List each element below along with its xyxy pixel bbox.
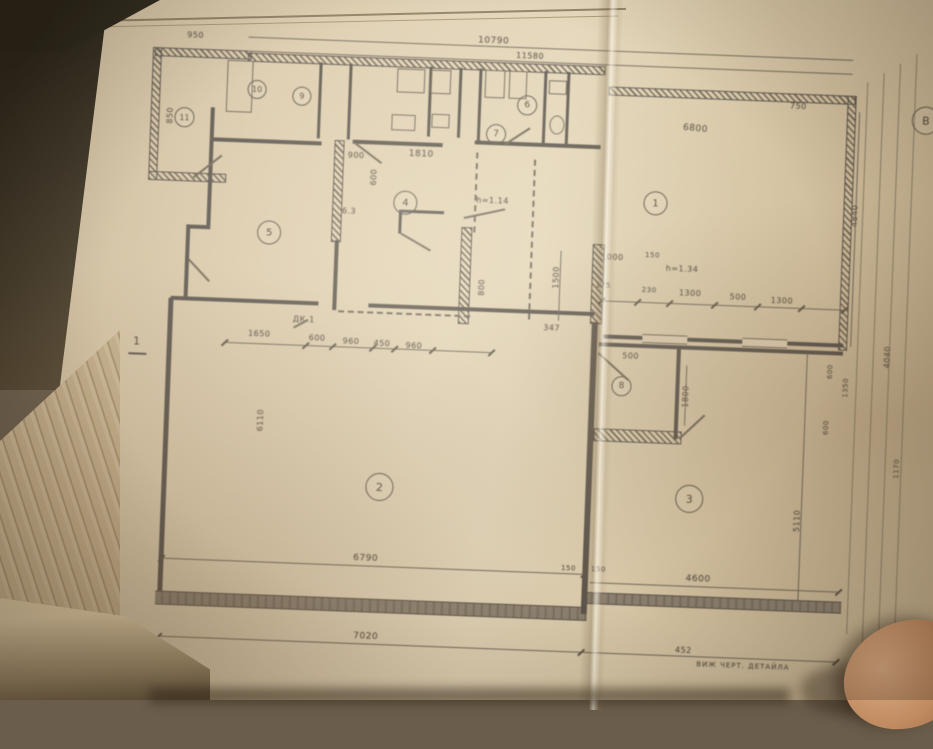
dim-label-1500: 1500 <box>551 266 561 289</box>
dim-label-4600: 4600 <box>685 574 710 585</box>
wall <box>353 140 443 147</box>
dim-label-600r1: 600 <box>826 364 835 379</box>
dim-label-7020: 7020 <box>353 631 378 642</box>
dim-label-top-overall: 10790 <box>478 35 510 46</box>
room-circle-5: 5 <box>257 220 282 245</box>
photo-scene: 10790 11580 950 850 750 6800 4840 900 18… <box>0 0 933 700</box>
dim-label-500a: 500 <box>729 292 746 302</box>
dim-label-1810: 1810 <box>409 149 434 160</box>
room-circle-3: 3 <box>675 484 704 513</box>
door-swing <box>679 415 705 439</box>
wall <box>157 298 174 598</box>
room-label: 6 <box>524 100 530 110</box>
window <box>742 338 787 349</box>
dashed-wall <box>338 310 470 317</box>
toilet-fixture <box>549 115 565 135</box>
dim-label-960b: 960 <box>405 341 422 351</box>
room-circle-8: 8 <box>611 376 632 397</box>
hatched-wall <box>148 171 226 183</box>
wall <box>183 224 190 300</box>
wall <box>347 64 353 140</box>
shadow <box>150 688 790 704</box>
sink-fixture <box>431 70 452 95</box>
room-circle-11: 11 <box>174 107 195 128</box>
cistern-fixture <box>549 80 568 95</box>
stove-fixture <box>397 68 426 93</box>
wall <box>170 296 318 306</box>
dim-label-150b: 150 <box>561 564 576 573</box>
thick-bottom-wall <box>585 592 841 614</box>
dim-label-150a: 150 <box>645 251 660 260</box>
floor-plan-drawing: 10790 11580 950 850 750 6800 4840 900 18… <box>74 3 919 694</box>
room-circle-2: 2 <box>365 472 394 501</box>
dim-label-5110: 5110 <box>792 509 802 532</box>
hatched-wall <box>155 47 252 60</box>
dimension-tick <box>835 589 843 596</box>
room-label: 10 <box>252 85 263 94</box>
dim-label-600: 600 <box>309 333 326 343</box>
dim-label-800: 800 <box>477 279 487 296</box>
window <box>642 334 687 345</box>
dim-label-600r2: 600 <box>822 420 831 435</box>
dim-label-960a: 960 <box>342 336 359 346</box>
room-label: 1 <box>652 198 659 209</box>
annotation-h134: h=1.34 <box>666 264 699 274</box>
room-circle-6: 6 <box>517 95 538 116</box>
dim-label-230: 230 <box>642 286 657 295</box>
dashed-wall <box>473 152 478 232</box>
dim-label-6110: 6110 <box>255 409 265 432</box>
dim-label-1650: 1650 <box>248 329 271 339</box>
dim-label-500b: 500 <box>622 351 639 361</box>
hatched-wall <box>331 140 345 242</box>
section-marker: 1 <box>133 334 141 347</box>
room-label: 5 <box>266 227 273 238</box>
dim-label-450: 450 <box>373 339 390 349</box>
dim-label-1350: 1350 <box>841 378 850 398</box>
wall <box>477 68 483 140</box>
wall <box>457 68 463 138</box>
dim-label-6790: 6790 <box>353 553 378 564</box>
dimension-line <box>590 582 838 593</box>
dim-label-top-overall-2: 11580 <box>516 51 544 61</box>
dimension-line <box>797 352 808 600</box>
room-label: 3 <box>685 492 692 505</box>
wall <box>188 224 210 229</box>
room-label: 11 <box>179 113 190 122</box>
dim-label-600-vert: 600 <box>369 169 379 186</box>
grid-axis-label: B <box>922 114 930 127</box>
fixture <box>431 114 450 129</box>
wall <box>206 107 215 227</box>
fixture <box>391 114 416 131</box>
room-circle-10: 10 <box>247 80 267 100</box>
dim-label-1800: 1800 <box>681 385 691 408</box>
room-label: 8 <box>618 381 624 391</box>
dim-label-4840: 4840 <box>850 204 860 227</box>
dim-label-347: 347 <box>543 323 560 333</box>
dim-label-900: 900 <box>348 150 365 160</box>
annotation-h114: h=1.14 <box>476 195 509 205</box>
wall <box>332 240 339 310</box>
dim-label-1300b: 1300 <box>771 296 794 306</box>
room-label: 2 <box>376 480 383 493</box>
wall <box>212 137 322 145</box>
dim-label-850: 850 <box>165 107 175 124</box>
wall <box>673 345 681 439</box>
dim-label-1300a: 1300 <box>679 288 702 298</box>
hatched-wall <box>148 47 162 180</box>
dim-label-4040: 4040 <box>882 346 892 369</box>
hatched-wall <box>609 86 856 104</box>
hatched-wall <box>248 53 606 76</box>
room-circle-1: 1 <box>643 191 668 216</box>
wall <box>542 71 548 143</box>
annotation-detail-note: ВИЖ ЧЕРТ. ДЕТАЙЛА <box>696 660 789 672</box>
dim-label-1170: 1170 <box>892 459 901 479</box>
room-label: 4 <box>402 197 409 208</box>
grid-axis-marker-B: B <box>911 106 933 135</box>
section-marker-tick <box>128 352 146 355</box>
dashed-wall <box>528 160 536 320</box>
dim-label-6-3: 6.3 <box>342 206 357 216</box>
door-swing <box>188 259 209 282</box>
annotation-dk1: ДК-1 <box>293 315 315 325</box>
door-swing <box>401 233 431 251</box>
dim-label-750: 750 <box>790 101 807 111</box>
dimension-line <box>158 636 838 663</box>
thick-bottom-wall <box>155 590 587 621</box>
dim-label-452: 452 <box>675 645 692 655</box>
dimension-tick <box>488 349 496 356</box>
room-label: 7 <box>493 129 499 139</box>
cabinet-fixture <box>484 70 505 99</box>
dim-label-6800: 6800 <box>683 123 709 135</box>
dim-label-950: 950 <box>187 30 204 40</box>
wall <box>317 62 323 138</box>
leader-line <box>464 208 505 218</box>
room-label: 9 <box>299 92 304 101</box>
room-circle-9: 9 <box>292 86 312 106</box>
